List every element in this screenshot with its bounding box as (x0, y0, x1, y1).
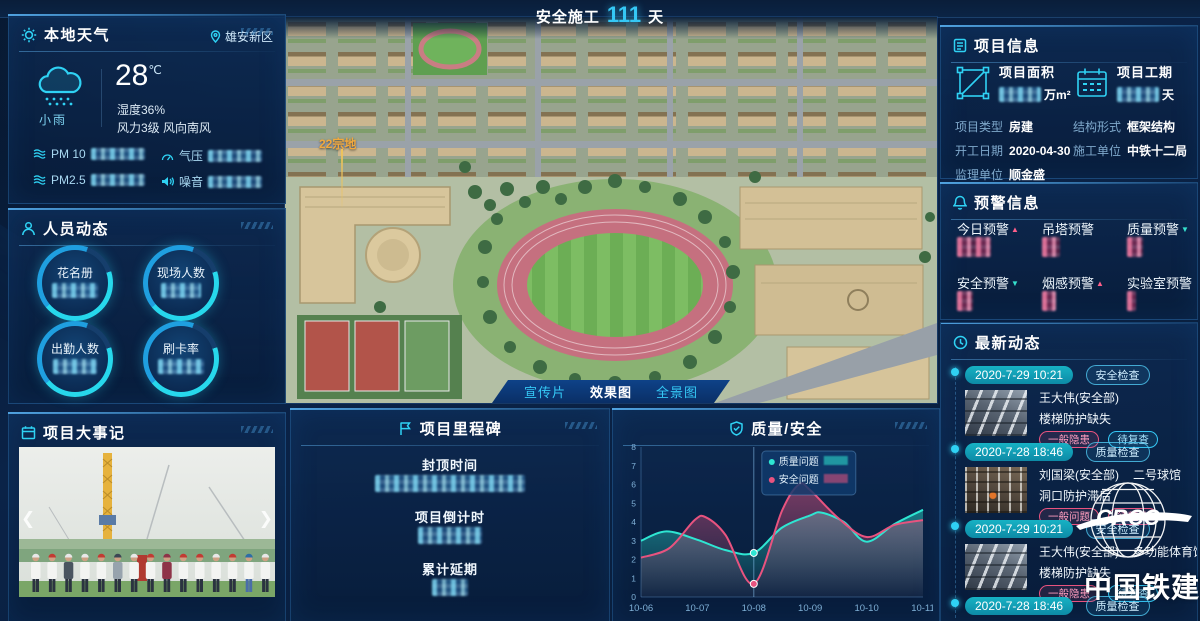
pressure-value-masked (208, 150, 262, 162)
alert-smoke-label: 烟感预警 (1042, 276, 1094, 291)
alert-lab: 实验室预警 (1127, 273, 1194, 292)
duration-value-masked (1117, 87, 1159, 102)
pressure-label: 气压 (179, 147, 203, 164)
project-type-label: 项目类型 (955, 120, 1003, 134)
structure-value: 框架结构 (1127, 120, 1175, 134)
alert-lab-value-masked (1127, 291, 1136, 311)
weather-title: 本地天气 (44, 24, 110, 45)
gauge-roster: 花名册 (37, 245, 113, 321)
land-parcel-label: 22宗地 (319, 135, 356, 152)
location-pin-icon (210, 30, 221, 43)
pressure-gauge-icon (161, 151, 174, 161)
document-icon (953, 38, 967, 53)
duration-label: 项目工期 (1117, 62, 1174, 81)
personnel-title: 人员动态 (43, 218, 109, 239)
svg-text:10-09: 10-09 (798, 603, 822, 614)
alerts-header: 预警信息 (941, 183, 1197, 220)
duration-unit: 天 (1162, 88, 1174, 102)
tab-panorama[interactable]: 全景图 (656, 382, 698, 401)
gauge-onsite-label: 现场人数 (143, 264, 219, 281)
alert-quality-label: 质量预警 (1127, 222, 1179, 237)
entry-issue: 楼梯防护缺失 (1039, 410, 1193, 427)
flag-icon (398, 421, 413, 436)
area-value-masked (999, 87, 1041, 102)
entry-photo (965, 544, 1027, 590)
feed-entry[interactable]: 2020-7-28 18:46 质量检查 刘国梁(安全部)二号球馆 洞口防护滞后… (965, 442, 1193, 518)
temperature-value: 28 (115, 59, 148, 92)
entry-place: 多功能体育馆 (1133, 545, 1198, 559)
quality-safety-title: 质量/安全 (751, 418, 823, 439)
delay-label: 累计延期 (291, 559, 609, 578)
feed-panel: 最新动态 2020-7-29 10:21 安全检查 王大伟(安全部) 楼梯防护缺… (940, 322, 1198, 621)
pm10-label: PM 10 (51, 147, 86, 161)
gauge-roster-label: 花名册 (37, 264, 113, 281)
entry-type-badge: 质量检查 (1086, 596, 1150, 616)
project-info-panel: 项目信息 项目面积 万m² 项目工期 天 项目类型房建 结构形式框架 (940, 25, 1198, 179)
alert-today-value-masked (957, 237, 991, 257)
start-date-label: 开工日期 (955, 144, 1003, 158)
delay-value-masked (432, 579, 468, 596)
supervisor-value: 顺金盛 (1009, 168, 1045, 182)
metric-pressure: 气压 (161, 147, 262, 164)
events-panel: 项目大事记 ❮ ❯ (8, 412, 286, 621)
pm10-value-masked (91, 148, 145, 160)
project-info-title: 项目信息 (974, 35, 1040, 56)
topping-time-label: 封顶时间 (291, 455, 609, 474)
header-deco (241, 28, 273, 35)
gauge-roster-value-masked (52, 283, 98, 298)
countdown-value-masked (418, 527, 482, 544)
alert-safety-value-masked (957, 291, 973, 311)
field-supervisor: 监理单位顺金盛 (955, 166, 1045, 183)
timeline-dot (951, 522, 959, 530)
wind: 风力3级 风向南风 (117, 119, 211, 136)
trend-down-icon: ▼ (1011, 279, 1019, 288)
rain-cloud-icon (33, 65, 85, 109)
alerts-title: 预警信息 (974, 192, 1040, 213)
timeline-dot (951, 599, 959, 607)
header-deco (565, 422, 597, 429)
contractor-label: 施工单位 (1073, 144, 1121, 158)
temperature: 28℃ (115, 59, 162, 93)
feed-entry[interactable]: 2020-7-29 10:21 安全检查 王大伟(安全部)多功能体育馆 楼梯防护… (965, 519, 1193, 595)
feed-title: 最新动态 (975, 332, 1041, 353)
divider (101, 69, 102, 127)
svg-text:质量问题: 质量问题 (779, 455, 819, 468)
svg-text:4: 4 (631, 517, 636, 527)
entry-person: 王大伟(安全部) (1039, 391, 1119, 405)
alert-quality-value-masked (1127, 237, 1143, 257)
milestone-title: 项目里程碑 (420, 418, 503, 439)
carousel-prev-button[interactable]: ❮ (21, 509, 35, 529)
countdown-label: 项目倒计时 (291, 507, 609, 526)
events-title: 项目大事记 (43, 422, 126, 443)
weather-panel: 本地天气 雄安新区 小雨 28℃ 湿度36% 风力3级 风向南风 PM 10 气… (8, 14, 286, 204)
metric-pm10: PM 10 (33, 147, 145, 161)
pm25-value-masked (91, 174, 145, 186)
personnel-panel: 人员动态 花名册 现场人数 出勤人数 刷卡率 (8, 208, 286, 404)
area-measure-icon (955, 65, 991, 101)
header-deco (895, 422, 927, 429)
gauge-attendance-label: 出勤人数 (37, 340, 113, 357)
gauge-attendance-value-masked (53, 359, 97, 374)
contractor-value: 中铁十二局 (1127, 144, 1187, 158)
pm25-label: PM2.5 (51, 173, 86, 187)
entry-photo (965, 390, 1027, 436)
header-deco (241, 426, 273, 433)
tab-render-view[interactable]: 效果图 (590, 382, 632, 401)
dashboard: 安全施工 111 天 (0, 0, 1200, 621)
entry-issue: 洞口防护滞后 (1039, 487, 1193, 504)
timeline-dot (951, 368, 959, 376)
noise-value-masked (208, 176, 262, 188)
alert-safety: 安全预警▼ (957, 273, 1019, 292)
svg-text:5: 5 (631, 498, 636, 508)
entry-place: 二号球馆 (1133, 468, 1181, 482)
trend-up-icon: ▲ (1096, 279, 1104, 288)
svg-text:3: 3 (631, 536, 636, 546)
structure-label: 结构形式 (1073, 120, 1121, 134)
quality-safety-panel: 质量/安全 01234567810-0610-0710-0810-0910-10… (612, 408, 940, 621)
entry-person: 刘国梁(安全部) (1039, 468, 1119, 482)
alert-quality: 质量预警▼ (1127, 219, 1189, 238)
safe-days-unit: 天 (648, 6, 664, 27)
view-switcher: 宣传片 效果图 全景图 (492, 380, 730, 403)
svg-text:安全问题: 安全问题 (779, 473, 819, 486)
area-unit: 万m² (1044, 88, 1071, 102)
entry-time: 2020-7-28 18:46 (965, 443, 1073, 461)
stat-duration: 项目工期 天 (1075, 62, 1174, 104)
carousel-next-button[interactable]: ❯ (259, 509, 273, 529)
alert-today: 今日预警▲ (957, 219, 1019, 238)
temperature-unit: ℃ (148, 63, 161, 77)
sun-icon (21, 27, 37, 43)
gauge-onsite: 现场人数 (143, 245, 219, 321)
timeline-dot (951, 445, 959, 453)
trend-up-icon: ▲ (1011, 225, 1019, 234)
entry-issue: 楼梯防护缺失 (1039, 564, 1193, 581)
gauge-swipe-rate-label: 刷卡率 (143, 340, 219, 357)
svg-text:2: 2 (631, 555, 636, 565)
haze-icon (33, 175, 46, 185)
alert-crane-label: 吊塔预警 (1042, 222, 1094, 237)
feed-header: 最新动态 (941, 323, 1197, 360)
alert-lab-label: 实验室预警 (1127, 276, 1192, 291)
trend-down-icon: ▼ (1181, 225, 1189, 234)
safe-days-prefix: 安全施工 (536, 6, 600, 27)
topping-time-value-masked (375, 475, 525, 492)
safe-days-count: 111 (607, 2, 641, 28)
alert-crane: 吊塔预警 (1042, 219, 1096, 238)
alerts-panel: 预警信息 今日预警▲ 吊塔预警 质量预警▼ 安全预警▼ 烟感预警▲ 实验室预警 (940, 182, 1198, 320)
land-parcel-marker (341, 149, 343, 207)
area-label: 项目面积 (999, 62, 1071, 81)
shield-check-icon (729, 421, 744, 436)
metric-noise: 噪音 (161, 173, 262, 190)
haze-icon (33, 149, 46, 159)
svg-text:10-10: 10-10 (854, 603, 878, 614)
alert-smoke-value-masked (1042, 291, 1056, 311)
svg-text:10-07: 10-07 (685, 603, 709, 614)
svg-text:10-11: 10-11 (911, 603, 933, 614)
feed-entry[interactable]: 2020-7-29 10:21 安全检查 王大伟(安全部) 楼梯防护缺失 一般隐… (965, 365, 1193, 441)
calendar-icon (1075, 66, 1109, 100)
entry-photo (965, 467, 1027, 513)
alert-smoke: 烟感预警▲ (1042, 273, 1104, 292)
field-structure: 结构形式框架结构 (1073, 118, 1175, 135)
entry-time: 2020-7-28 18:46 (965, 597, 1073, 615)
speaker-icon (161, 176, 174, 187)
entry-time: 2020-7-29 10:21 (965, 520, 1073, 538)
svg-text:10-08: 10-08 (742, 603, 766, 614)
supervisor-label: 监理单位 (955, 168, 1003, 182)
svg-text:6: 6 (631, 480, 636, 490)
metric-pm25: PM2.5 (33, 173, 145, 187)
svg-text:10-06: 10-06 (629, 603, 653, 614)
gauge-swipe-rate: 刷卡率 (143, 321, 219, 397)
aerial-render (285, 17, 937, 403)
events-photo: ❮ ❯ (19, 447, 275, 597)
alert-today-label: 今日预警 (957, 222, 1009, 237)
milestone-header: 项目里程碑 (291, 409, 609, 446)
header-deco (241, 222, 273, 229)
safe-days-title: 安全施工 111 天 (536, 2, 664, 28)
entry-type-badge: 质量检查 (1086, 442, 1150, 462)
feed-entry[interactable]: 2020-7-28 18:46 质量检查 刘国梁(安全部) (965, 596, 1193, 621)
project-info-header: 项目信息 (941, 26, 1197, 63)
svg-text:7: 7 (631, 461, 636, 471)
svg-text:0: 0 (631, 592, 636, 602)
site-3d-view[interactable]: 22宗地 宣传片 效果图 全景图 (284, 16, 938, 404)
tab-promo-video[interactable]: 宣传片 (524, 382, 566, 401)
entry-type-badge: 安全检查 (1086, 365, 1150, 385)
weather-condition: 小雨 (39, 111, 67, 128)
quality-safety-chart[interactable]: 01234567810-0610-0710-0810-0910-1010-11质… (619, 439, 933, 617)
entry-time: 2020-7-29 10:21 (965, 366, 1073, 384)
alert-crane-value-masked (1042, 237, 1060, 257)
humidity: 湿度36% (117, 101, 165, 118)
field-project-type: 项目类型房建 (955, 118, 1033, 135)
alert-safety-label: 安全预警 (957, 276, 1009, 291)
project-type-value: 房建 (1009, 120, 1033, 134)
entry-type-badge: 安全检查 (1086, 519, 1150, 539)
noise-label: 噪音 (179, 173, 203, 190)
entry-person: 王大伟(安全部) (1039, 545, 1119, 559)
group-photo (19, 447, 275, 597)
calendar-icon (21, 425, 36, 440)
milestone-panel: 项目里程碑 封顶时间 项目倒计时 累计延期 (290, 408, 610, 621)
start-date-value: 2020-04-30 (1009, 144, 1070, 158)
field-contractor: 施工单位中铁十二局 (1073, 142, 1187, 159)
gauge-swipe-rate-value-masked (158, 359, 204, 374)
svg-text:1: 1 (631, 573, 636, 583)
clock-icon (953, 335, 968, 350)
svg-text:8: 8 (631, 442, 636, 452)
stat-area: 项目面积 万m² (955, 62, 1071, 104)
bell-icon (953, 195, 967, 210)
field-start-date: 开工日期2020-04-30 (955, 142, 1070, 159)
gauge-attendance: 出勤人数 (37, 321, 113, 397)
person-icon (21, 221, 36, 236)
timeline-line (955, 367, 956, 618)
gauge-onsite-value-masked (161, 283, 201, 298)
